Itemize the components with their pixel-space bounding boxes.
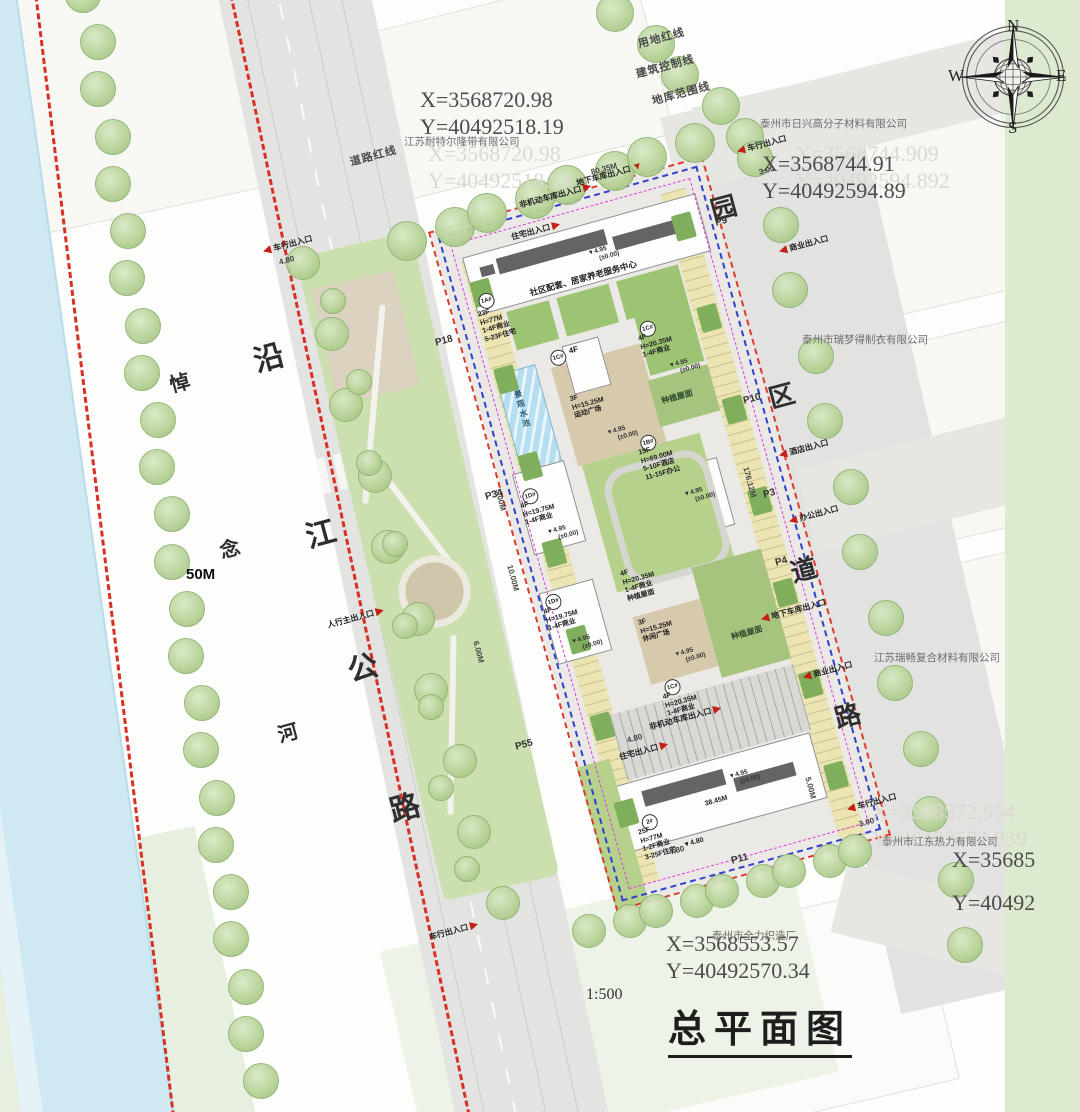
tree (125, 308, 161, 344)
coordinate-label-bottom-right-clipped: X=35685Y=40492 (952, 846, 1035, 916)
tree (183, 732, 219, 768)
compass-w: W (948, 66, 964, 86)
tree (140, 402, 176, 438)
company-label: 泰州市全力织造厂 (712, 928, 796, 943)
tree (199, 780, 235, 816)
tree (228, 969, 264, 1005)
tree (392, 613, 418, 639)
tree (467, 193, 507, 233)
coordinate-label-right: X=3568744.91Y=40492594.89 (762, 150, 906, 204)
tree (109, 260, 145, 296)
tree (903, 731, 939, 767)
tree (807, 403, 843, 439)
company-label: 江苏耐特尔隆带有限公司 (404, 134, 520, 149)
tree (486, 886, 520, 920)
road-name-char: 沿 (248, 330, 288, 380)
tree (320, 288, 346, 314)
tree (213, 921, 249, 957)
tree (387, 221, 427, 261)
tree (572, 914, 606, 948)
tree (184, 685, 220, 721)
tree (772, 272, 808, 308)
tree (139, 449, 175, 485)
tree (833, 469, 869, 505)
tree (80, 71, 116, 107)
tree (243, 1063, 279, 1099)
site-plan-drawing: ↑ ↑ ↓ ↓ (0, 0, 1080, 1112)
tree (110, 213, 146, 249)
tree (454, 856, 480, 882)
tree (168, 638, 204, 674)
tree (675, 123, 715, 163)
road-name-char: 悼 (166, 365, 193, 398)
company-label: 江苏瑞畅复合材料有限公司 (874, 650, 1000, 665)
tree (639, 894, 673, 928)
tree (947, 927, 983, 963)
tree (198, 827, 234, 863)
drawing-title: 总平面图 (668, 998, 852, 1058)
tree (124, 355, 160, 391)
tree (154, 496, 190, 532)
tree (838, 834, 872, 868)
company-label: 泰州市江东热力有限公司 (882, 834, 998, 849)
tree (443, 744, 477, 778)
tree (763, 207, 799, 243)
tree (457, 815, 491, 849)
tree (169, 591, 205, 627)
compass-s: S (1008, 118, 1017, 138)
drawing-scale: 1:500 (586, 986, 622, 1004)
company-label: 泰州市瑞梦得制衣有限公司 (802, 332, 928, 347)
tree (877, 665, 913, 701)
tree (772, 854, 806, 888)
compass-e: E (1056, 66, 1066, 86)
compass-n: N (1007, 16, 1019, 36)
tree (228, 1016, 264, 1052)
tree (95, 119, 131, 155)
tree (346, 369, 372, 395)
coordinate-label-top: X=3568720.98Y=40492518.19 (420, 86, 564, 140)
dimension-label: 10.00M (505, 564, 521, 592)
tree (428, 775, 454, 801)
tree (418, 694, 444, 720)
tree (213, 874, 249, 910)
green-band-east (1005, 0, 1080, 1112)
tree (154, 544, 190, 580)
road-name-char: 河 (274, 715, 301, 748)
company-label: 泰州市日兴高分子材料有限公司 (760, 116, 907, 131)
compass-icon (958, 22, 1068, 132)
tree (95, 166, 131, 202)
tree (705, 874, 739, 908)
road-name-char: 念 (216, 531, 243, 564)
tree (868, 600, 904, 636)
tree (842, 534, 878, 570)
river-width-label: 50M (186, 566, 215, 583)
